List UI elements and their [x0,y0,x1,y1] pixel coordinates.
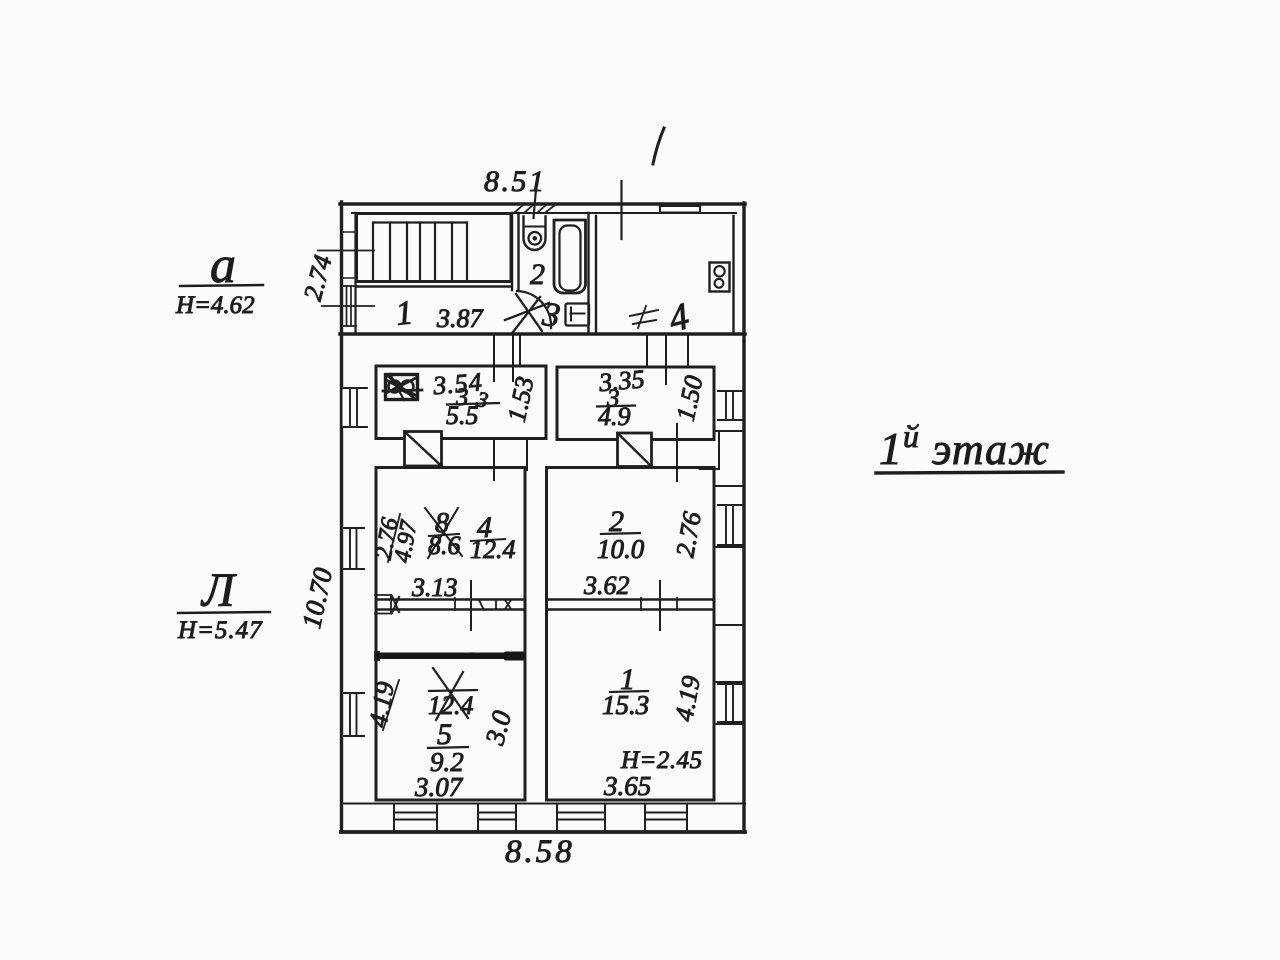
svg-text:3.0: 3.0 [479,707,517,749]
svg-text:H=5.47: H=5.47 [177,617,263,644]
svg-text:3.62: 3.62 [583,571,630,600]
svg-text:10.0: 10.0 [597,534,645,564]
svg-text:5.5: 5.5 [446,401,479,430]
svg-text:3.87: 3.87 [436,304,484,333]
svg-text:2: 2 [530,258,545,291]
svg-text:3: 3 [539,296,562,335]
svg-text:8.6: 8.6 [428,531,461,560]
svg-text:8.51: 8.51 [484,165,547,198]
svg-text:3.35: 3.35 [597,364,646,397]
svg-text:3.13: 3.13 [411,573,458,602]
svg-text:2.76: 2.76 [670,510,706,560]
svg-text:3.65: 3.65 [603,771,651,801]
svg-text:2.74: 2.74 [298,252,338,303]
svg-text:Л: Л [200,564,237,617]
svg-text:1.53: 1.53 [502,374,540,425]
svg-text:3.07: 3.07 [414,772,464,802]
svg-text:H=2.45: H=2.45 [620,747,703,774]
svg-text:4.19: 4.19 [363,680,399,730]
svg-text:1: 1 [394,294,415,333]
svg-text:4.19: 4.19 [669,674,705,724]
svg-text:1.50: 1.50 [671,373,709,424]
svg-text:8.58: 8.58 [505,834,575,870]
svg-text:H=4.62: H=4.62 [175,292,255,319]
svg-text:10.70: 10.70 [296,565,338,631]
svg-text:15.3: 15.3 [602,690,649,720]
svg-text:1й этаж: 1й этаж [879,418,1050,474]
svg-text:4.9: 4.9 [598,402,631,431]
svg-text:12.4: 12.4 [470,535,516,564]
